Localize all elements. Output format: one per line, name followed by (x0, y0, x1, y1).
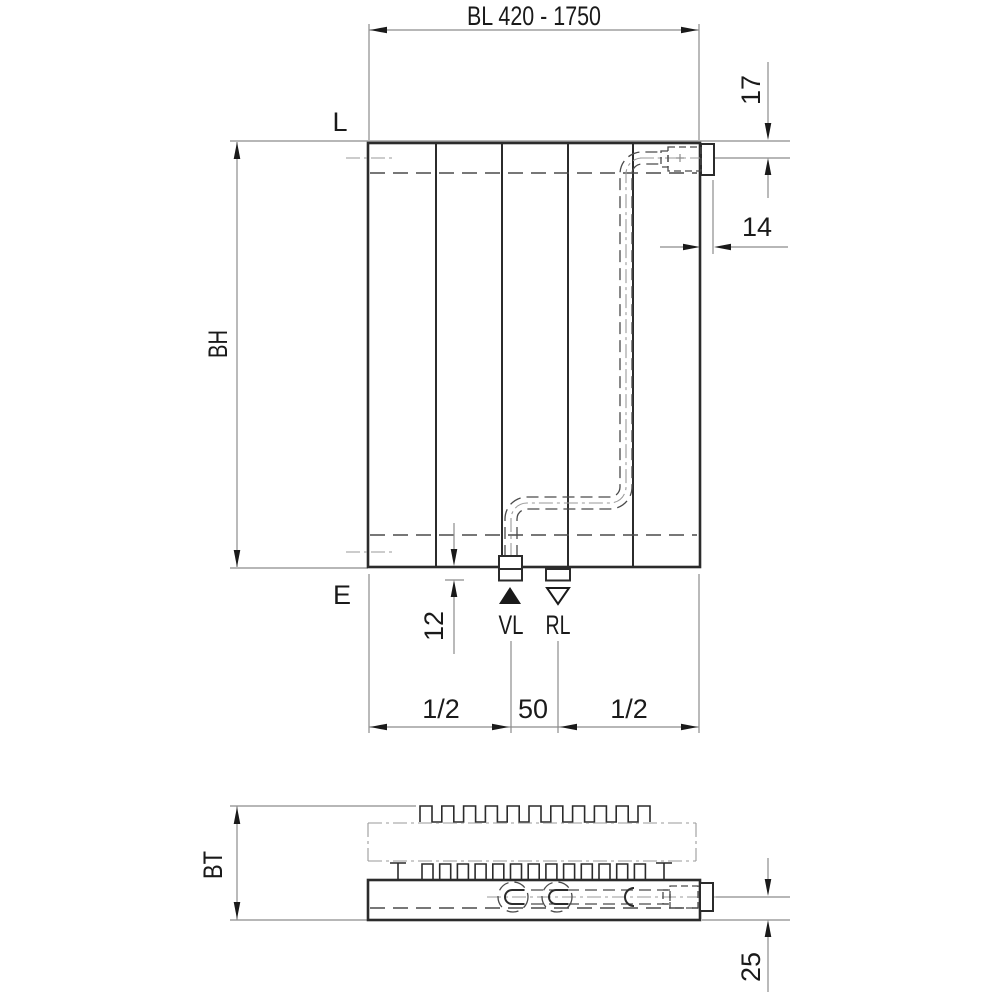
convector-phantom-outline (368, 823, 696, 861)
dim-50-label: 50 (518, 694, 548, 724)
supply-flow-icon (499, 587, 521, 604)
supply-stub (499, 569, 522, 581)
bottom-fin-row (422, 864, 645, 880)
return-stub (546, 569, 570, 581)
dimension-bl: BL 420 - 1750 (369, 1, 699, 33)
top-fin-row (420, 806, 650, 822)
dim-half-right-label: 1/2 (610, 694, 648, 724)
dim-14-label: 14 (742, 212, 772, 242)
supply-socket (499, 556, 522, 569)
dimension-17: 17 (736, 62, 771, 198)
bh-dim-label: BH (203, 330, 233, 358)
top-level-label: L (332, 107, 347, 137)
dimension-bottom-chain: 1/2 50 1/2 (369, 694, 699, 730)
drawing-canvas: BL 420 - 1750 BH L E 17 14 12 VL RL (0, 0, 1000, 1000)
radiator-technical-drawing: BL 420 - 1750 BH L E 17 14 12 VL RL (0, 0, 1000, 1000)
panel-section (368, 880, 700, 920)
dim-half-left-label: 1/2 (422, 694, 460, 724)
dim-17-label: 17 (736, 75, 766, 105)
dim-12-label: 12 (419, 611, 449, 641)
dim-25-label: 25 (736, 952, 766, 982)
bt-dim-label: BT (198, 851, 228, 879)
dimension-bt: BT (198, 806, 240, 920)
return-label: RL (546, 610, 571, 640)
dimension-bh: BH (203, 142, 240, 567)
bl-dim-label: BL 420 - 1750 (467, 1, 601, 31)
section-view (230, 806, 790, 920)
bottom-level-label: E (333, 580, 351, 610)
return-flow-icon (547, 588, 569, 604)
supply-label: VL (499, 610, 524, 640)
dimension-25: 25 (736, 858, 771, 992)
